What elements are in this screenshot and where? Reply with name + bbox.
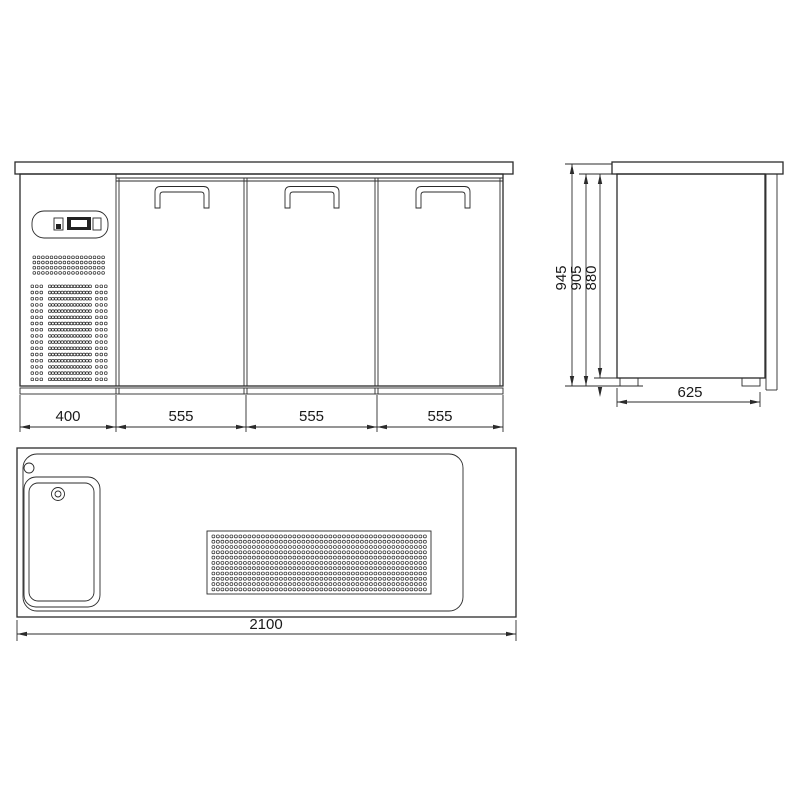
side-view: 945 905 880 625 (553, 162, 783, 407)
side-body (617, 174, 765, 378)
front-plinth (20, 388, 503, 394)
front-dimension-chain: 400 555 555 555 (20, 395, 503, 432)
sink (24, 477, 100, 607)
control-panel (32, 211, 108, 238)
dim-front-door1: 555 (168, 408, 193, 425)
door-handle-1 (155, 187, 209, 209)
sink-outer-rim (24, 477, 100, 607)
dim-plan-width: 2100 (249, 616, 282, 633)
side-height-dimensions: 945 905 880 (553, 164, 643, 397)
panel-button-right (93, 218, 101, 230)
sink-drain-inner (55, 491, 61, 497)
side-worktop (612, 162, 783, 174)
door-dividers (116, 174, 500, 386)
dim-front-door3: 555 (427, 408, 452, 425)
side-foot-left (620, 378, 638, 386)
sink-drain-outer (52, 488, 65, 501)
technical-drawing-page: 400 555 555 555 (0, 0, 800, 800)
plan-raised-edge (23, 454, 463, 611)
dim-side-inner-height: 880 (583, 265, 600, 290)
plan-outer-edge (17, 448, 516, 617)
tap-hole (24, 463, 34, 473)
plan-grille-perforations (212, 535, 426, 591)
sink-bowl (29, 483, 94, 601)
side-back-panel (766, 174, 777, 390)
front-body (20, 174, 503, 386)
dim-front-door2: 555 (299, 408, 324, 425)
door-handle-3 (416, 187, 470, 209)
front-worktop (15, 162, 513, 174)
plan-view: 2100 (17, 448, 516, 641)
front-ventilation-grille (31, 256, 107, 381)
dim-front-section: 400 (55, 408, 80, 425)
door-handle-2 (285, 187, 339, 209)
plan-grille-panel (207, 531, 431, 594)
front-elevation-view: 400 555 555 555 (15, 162, 513, 432)
side-foot-right (742, 378, 760, 386)
drawing-svg: 400 555 555 555 (0, 0, 800, 800)
plan-width-dimension: 2100 (17, 616, 516, 641)
side-depth-dimension: 625 (617, 384, 760, 407)
dim-side-depth: 625 (677, 384, 702, 401)
